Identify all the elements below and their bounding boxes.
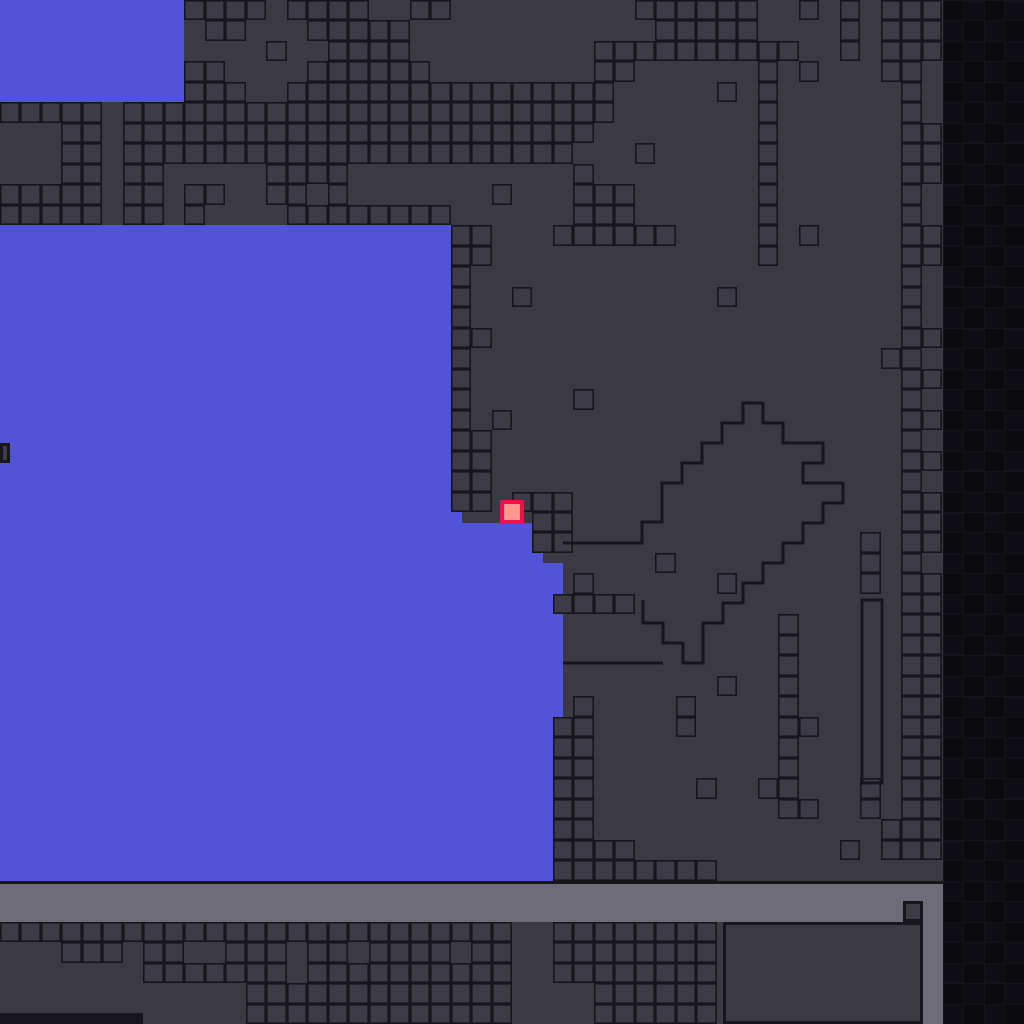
terrain-tile [410, 82, 430, 102]
terrain-tile [492, 82, 512, 102]
dark-strip-cell [985, 759, 1004, 778]
terrain-tile [717, 573, 737, 593]
terrain-tile [123, 164, 143, 184]
terrain-tile [389, 82, 409, 102]
dark-strip-cell [944, 779, 963, 798]
dark-strip-cell [964, 533, 983, 552]
stairs-outline-path [563, 403, 843, 663]
terrain-tile [922, 594, 942, 614]
terrain-tile [102, 942, 122, 962]
terrain-tile [328, 123, 348, 143]
terrain-tile [164, 102, 184, 122]
dark-strip-cell [1005, 185, 1024, 204]
terrain-tile [184, 184, 204, 204]
terrain-tile [860, 573, 880, 593]
terrain-tile [758, 41, 778, 61]
terrain-tile [369, 1004, 389, 1024]
terrain-tile [553, 143, 573, 163]
terrain-tile [696, 41, 716, 61]
terrain-tile [635, 942, 655, 962]
terrain-tile [901, 532, 921, 552]
terrain-tile [389, 963, 409, 983]
terrain-tile [430, 1004, 450, 1024]
terrain-tile [614, 922, 634, 942]
terrain-tile [901, 123, 921, 143]
terrain-tile [451, 983, 471, 1003]
dark-strip-cell [964, 615, 983, 634]
terrain-tile [451, 348, 471, 368]
terrain-tile [184, 0, 204, 20]
terrain-tile [451, 82, 471, 102]
dark-strip-cell [1005, 1, 1024, 20]
terrain-tile [778, 614, 798, 634]
terrain-tile [41, 205, 61, 225]
terrain-tile [328, 922, 348, 942]
terrain-tile [492, 102, 512, 122]
terrain-tile [840, 840, 860, 860]
dark-strip-cell [1005, 984, 1024, 1003]
dark-strip-cell [944, 62, 963, 81]
terrain-tile [61, 164, 81, 184]
terrain-tile [901, 164, 921, 184]
terrain-tile [471, 471, 491, 491]
terrain-tile [164, 922, 184, 942]
dark-strip-cell [944, 697, 963, 716]
terrain-tile [881, 61, 901, 81]
dark-strip-cell [944, 349, 963, 368]
terrain-tile [246, 123, 266, 143]
dark-strip-cell [964, 882, 983, 901]
dark-strip-cell [985, 21, 1004, 40]
terrain-tile [287, 205, 307, 225]
dark-strip-cell [985, 267, 1004, 286]
terrain-tile [184, 123, 204, 143]
game-viewport[interactable] [0, 0, 1024, 1024]
dark-strip-cell [1005, 21, 1024, 40]
terrain-tile [696, 0, 716, 20]
dark-strip-cell [944, 759, 963, 778]
dark-strip-cell [985, 124, 1004, 143]
terrain-tile [307, 922, 327, 942]
terrain-tile [369, 41, 389, 61]
terrain-tile [901, 205, 921, 225]
terrain-tile [82, 205, 102, 225]
terrain-tile [614, 1004, 634, 1024]
dark-strip-cell [985, 390, 1004, 409]
terrain-tile [553, 737, 573, 757]
terrain-tile [389, 41, 409, 61]
dark-strip-cell [964, 144, 983, 163]
dark-strip-cell [964, 636, 983, 655]
terrain-tile [553, 758, 573, 778]
dark-strip-cell [944, 615, 963, 634]
terrain-tile [307, 82, 327, 102]
terrain-tile [492, 123, 512, 143]
dark-strip-cell [985, 349, 1004, 368]
terrain-tile [348, 41, 368, 61]
dark-strip-cell [985, 493, 1004, 512]
terrain-tile [594, 225, 614, 245]
dark-strip-cell [1005, 533, 1024, 552]
terrain-tile [471, 123, 491, 143]
terrain-tile [922, 20, 942, 40]
dark-strip-cell [964, 984, 983, 1003]
dark-strip-cell [964, 247, 983, 266]
terrain-tile [184, 143, 204, 163]
player-sprite[interactable] [500, 500, 524, 524]
terrain-tile [614, 184, 634, 204]
dark-strip-cell [1005, 42, 1024, 61]
terrain-tile [655, 0, 675, 20]
dark-strip-cell [985, 329, 1004, 348]
dark-strip-cell [1005, 861, 1024, 880]
terrain-tile [143, 922, 163, 942]
terrain-tile [410, 61, 430, 81]
dark-strip-cell [964, 165, 983, 184]
terrain-tile [778, 778, 798, 798]
terrain-tile [430, 983, 450, 1003]
terrain-tile [266, 102, 286, 122]
terrain-tile [328, 164, 348, 184]
terrain-tile [901, 61, 921, 81]
terrain-tile [799, 61, 819, 81]
dark-strip-cell [964, 513, 983, 532]
dark-strip-cell [964, 83, 983, 102]
dark-strip-cell [964, 759, 983, 778]
dark-strip-cell [944, 308, 963, 327]
terrain-tile [369, 942, 389, 962]
terrain-tile [225, 963, 245, 983]
terrain-tile [61, 102, 81, 122]
terrain-tile [492, 922, 512, 942]
terrain-tile [389, 123, 409, 143]
terrain-tile [266, 184, 286, 204]
dark-strip-cell [964, 697, 983, 716]
terrain-tile [573, 799, 593, 819]
dark-strip-cell [964, 42, 983, 61]
terrain-tile [594, 82, 614, 102]
terrain-tile [389, 61, 409, 81]
dark-strip-cell [944, 165, 963, 184]
dark-strip-cell [1005, 267, 1024, 286]
terrain-tile [430, 143, 450, 163]
terrain-tile [922, 676, 942, 696]
terrain-tile [758, 246, 778, 266]
terrain-tile [922, 717, 942, 737]
dark-strip-cell [985, 923, 1004, 942]
terrain-tile [573, 573, 593, 593]
dark-strip-cell [985, 615, 1004, 634]
terrain-tile [410, 0, 430, 20]
dark-strip-cell [985, 943, 1004, 962]
terrain-tile [881, 840, 901, 860]
dark-strip-cell [985, 144, 1004, 163]
terrain-tile [901, 246, 921, 266]
terrain-tile [41, 922, 61, 942]
dark-strip-cell [1005, 513, 1024, 532]
terrain-tile [737, 20, 757, 40]
terrain-tile [881, 819, 901, 839]
dark-strip-cell [964, 493, 983, 512]
terrain-tile [635, 225, 655, 245]
terrain-tile [778, 41, 798, 61]
dark-strip-cell [944, 472, 963, 491]
terrain-tile [840, 41, 860, 61]
dark-strip-cell [1005, 247, 1024, 266]
terrain-tile [41, 184, 61, 204]
terrain-tile [246, 0, 266, 20]
dark-strip-cell [964, 677, 983, 696]
terrain-tile [0, 184, 20, 204]
terrain-tile [205, 20, 225, 40]
dark-strip-cell [1005, 923, 1024, 942]
terrain-tile [205, 143, 225, 163]
terrain-tile [573, 696, 593, 716]
terrain-tile [696, 20, 716, 40]
terrain-tile [778, 799, 798, 819]
dark-strip-cell [944, 103, 963, 122]
terrain-tile [635, 860, 655, 880]
terrain-tile [758, 184, 778, 204]
terrain-tile [471, 451, 491, 471]
terrain-tile [594, 205, 614, 225]
blue-area-main [0, 225, 462, 884]
terrain-tile [840, 20, 860, 40]
dark-strip-cell [1005, 144, 1024, 163]
dark-strip-cell [944, 329, 963, 348]
dark-strip-cell [985, 697, 1004, 716]
terrain-tile [717, 20, 737, 40]
terrain-tile [20, 922, 40, 942]
dark-strip-cell [985, 103, 1004, 122]
terrain-tile [901, 840, 921, 860]
terrain-tile [348, 102, 368, 122]
terrain-tile [614, 61, 634, 81]
terrain-tile [348, 82, 368, 102]
terrain-tile [205, 963, 225, 983]
terrain-tile [328, 20, 348, 40]
terrain-tile [573, 942, 593, 962]
terrain-tile [901, 41, 921, 61]
terrain-tile [594, 963, 614, 983]
terrain-tile [758, 205, 778, 225]
dark-strip-cell [1005, 718, 1024, 737]
dark-strip-cell [1005, 329, 1024, 348]
dark-strip-cell [964, 800, 983, 819]
dark-strip-cell [964, 923, 983, 942]
dark-strip-cell [944, 513, 963, 532]
terrain-tile [901, 573, 921, 593]
terrain-tile [860, 799, 880, 819]
terrain-tile [389, 1004, 409, 1024]
terrain-tile [492, 184, 512, 204]
terrain-tile [778, 737, 798, 757]
terrain-tile [451, 102, 471, 122]
terrain-tile [266, 1004, 286, 1024]
dark-strip-cell [964, 1, 983, 20]
terrain-tile [901, 0, 921, 20]
dark-strip-cell [985, 1005, 1004, 1024]
terrain-tile [901, 614, 921, 634]
terrain-tile [430, 963, 450, 983]
terrain-tile [778, 717, 798, 737]
terrain-tile [778, 696, 798, 716]
terrain-tile [676, 963, 696, 983]
terrain-tile [901, 307, 921, 327]
terrain-tile [614, 860, 634, 880]
dark-strip-cell [944, 574, 963, 593]
terrain-tile [389, 922, 409, 942]
dark-strip-cell [1005, 759, 1024, 778]
terrain-tile [123, 922, 143, 942]
terrain-tile [553, 778, 573, 798]
terrain-tile [266, 942, 286, 962]
dark-strip-cell [1005, 165, 1024, 184]
terrain-tile [205, 922, 225, 942]
terrain-tile [471, 922, 491, 942]
dark-strip-cell [964, 431, 983, 450]
terrain-tile [123, 184, 143, 204]
terrain-tile [532, 512, 552, 532]
terrain-tile [901, 696, 921, 716]
dark-strip-cell [944, 902, 963, 921]
dark-strip-cell [944, 411, 963, 430]
terrain-tile [225, 102, 245, 122]
terrain-tile [451, 430, 471, 450]
terrain-tile [451, 123, 471, 143]
terrain-tile [0, 922, 20, 942]
terrain-tile [246, 922, 266, 942]
terrain-tile [287, 164, 307, 184]
terrain-tile [553, 594, 573, 614]
dark-strip-cell [964, 574, 983, 593]
terrain-tile [594, 594, 614, 614]
terrain-tile [492, 1004, 512, 1024]
terrain-tile [922, 819, 942, 839]
terrain-tile [82, 184, 102, 204]
terrain-tile [410, 963, 430, 983]
terrain-tile [614, 840, 634, 860]
terrain-tile [696, 942, 716, 962]
terrain-tile [922, 451, 942, 471]
terrain-tile [61, 205, 81, 225]
terrain-tile [922, 840, 942, 860]
dark-strip-cell [964, 718, 983, 737]
terrain-tile [430, 942, 450, 962]
terrain-tile [614, 942, 634, 962]
dark-strip-cell [1005, 615, 1024, 634]
terrain-tile [553, 922, 573, 942]
terrain-tile [307, 61, 327, 81]
terrain-tile [676, 717, 696, 737]
dark-strip-cell [964, 820, 983, 839]
terrain-tile [594, 61, 614, 81]
dark-strip-cell [985, 513, 1004, 532]
terrain-tile [922, 123, 942, 143]
terrain-tile [205, 184, 225, 204]
terrain-tile [573, 778, 593, 798]
dark-strip-cell [985, 308, 1004, 327]
terrain-tile [901, 348, 921, 368]
terrain-tile [553, 942, 573, 962]
terrain-tile [655, 553, 675, 573]
terrain-tile [184, 61, 204, 81]
dark-strip-cell [964, 964, 983, 983]
dark-strip-cell [944, 452, 963, 471]
terrain-tile [451, 369, 471, 389]
terrain-tile [369, 20, 389, 40]
dark-strip-cell [1005, 800, 1024, 819]
terrain-tile [389, 143, 409, 163]
dark-strip-cell [964, 943, 983, 962]
dark-strip-cell [985, 226, 1004, 245]
dark-strip-cell [1005, 226, 1024, 245]
dark-strip-cell [964, 841, 983, 860]
terrain-tile [287, 82, 307, 102]
terrain-tile [922, 635, 942, 655]
terrain-tile [553, 512, 573, 532]
terrain-tile [573, 205, 593, 225]
terrain-tile [696, 860, 716, 880]
dark-strip-cell [964, 267, 983, 286]
dark-strip-cell [985, 882, 1004, 901]
dark-strip-cell [944, 800, 963, 819]
terrain-tile [922, 778, 942, 798]
terrain-tile [901, 676, 921, 696]
dark-strip-cell [944, 1005, 963, 1024]
dark-strip-cell [964, 103, 983, 122]
terrain-tile [328, 82, 348, 102]
terrain-tile [676, 41, 696, 61]
terrain-tile [82, 164, 102, 184]
terrain-tile [328, 205, 348, 225]
terrain-tile [778, 655, 798, 675]
terrain-tile [881, 348, 901, 368]
platform-bar-right-arm [923, 922, 943, 1024]
terrain-tile [717, 0, 737, 20]
dark-strip-cell [985, 841, 1004, 860]
dark-strip-cell [944, 493, 963, 512]
terrain-tile [573, 758, 593, 778]
terrain-tile [553, 717, 573, 737]
terrain-tile [451, 963, 471, 983]
terrain-tile [573, 102, 593, 122]
terrain-tile [389, 983, 409, 1003]
terrain-tile [614, 983, 634, 1003]
terrain-tile [532, 143, 552, 163]
terrain-tile [860, 778, 880, 798]
terrain-tile [614, 594, 634, 614]
terrain-tile [348, 1004, 368, 1024]
terrain-tile [696, 963, 716, 983]
dark-strip-cell [1005, 349, 1024, 368]
big-outlined-box-bottom [723, 922, 923, 1024]
terrain-tile [205, 61, 225, 81]
dark-strip-cell [964, 902, 983, 921]
terrain-tile [799, 717, 819, 737]
dark-strip-cell [944, 677, 963, 696]
terrain-tile [922, 758, 942, 778]
dark-strip-cell [1005, 370, 1024, 389]
dark-strip-cell [1005, 103, 1024, 122]
terrain-tile [901, 635, 921, 655]
terrain-tile [901, 287, 921, 307]
terrain-tile [492, 942, 512, 962]
terrain-tile [696, 778, 716, 798]
dark-strip-cell [985, 964, 1004, 983]
terrain-tile [164, 942, 184, 962]
terrain-tile [307, 1004, 327, 1024]
